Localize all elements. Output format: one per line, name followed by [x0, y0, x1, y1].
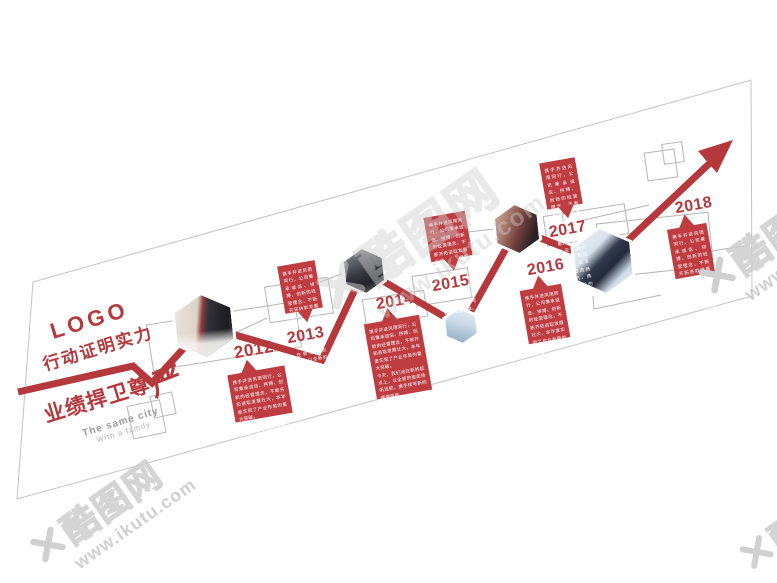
structure-linework [0, 0, 777, 583]
milestone-bubble-2016: 携手并进风雨同行，公司秉承诚信、拼搏、创新的经营理念，不断开拓进取发展壮大，本年… [520, 284, 571, 344]
bubble-tail [297, 308, 315, 324]
milestone-bubble-2013: 携手并进风雨同行，公司秉承诚信、拼搏、创新的经营理念，不断开拓进取发展壮大，本年… [277, 260, 323, 314]
milestone-text-2014: 携手并进风雨同行，公司秉承诚信、拼搏、创新的经营理念，不断开拓进取发展壮大，本年… [369, 320, 429, 401]
milestone-bubble-2015: 携手并进风雨同行，公司秉承诚信、拼搏、创新的经营理念，不断开拓进取发展壮大，本年… [423, 211, 472, 263]
slogan-line-2-calligraphy: 严 [147, 352, 185, 406]
wall-outline [17, 80, 752, 499]
milestone-bubble-2012: 携手并进风雨同行，公司秉承诚信、拼搏、创新的经营理念，不断开拓进取发展壮大，本年… [227, 365, 292, 422]
design-canvas: 携手并进风雨同行，公司秉承诚信、拼搏、创新的经营理念，不断开拓进取发展壮大，本年… [0, 0, 777, 583]
bubble-tail [444, 256, 462, 272]
milestone-bubble-2018: 携手并进风雨同行，公司秉承诚信、拼搏、创新的经营理念，不断开拓进取发展壮大，本年… [667, 223, 715, 279]
bubble-tail [558, 204, 576, 220]
